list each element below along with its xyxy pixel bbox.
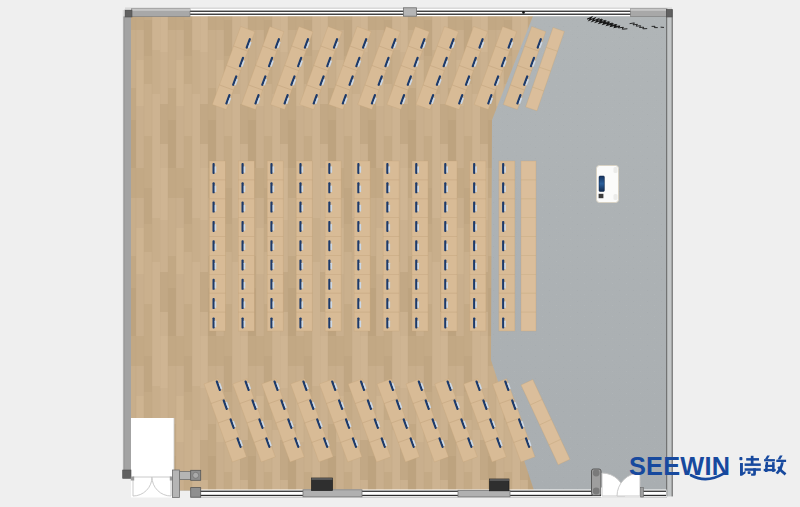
svg-text:SEEWIN: SEEWIN [629,452,730,480]
